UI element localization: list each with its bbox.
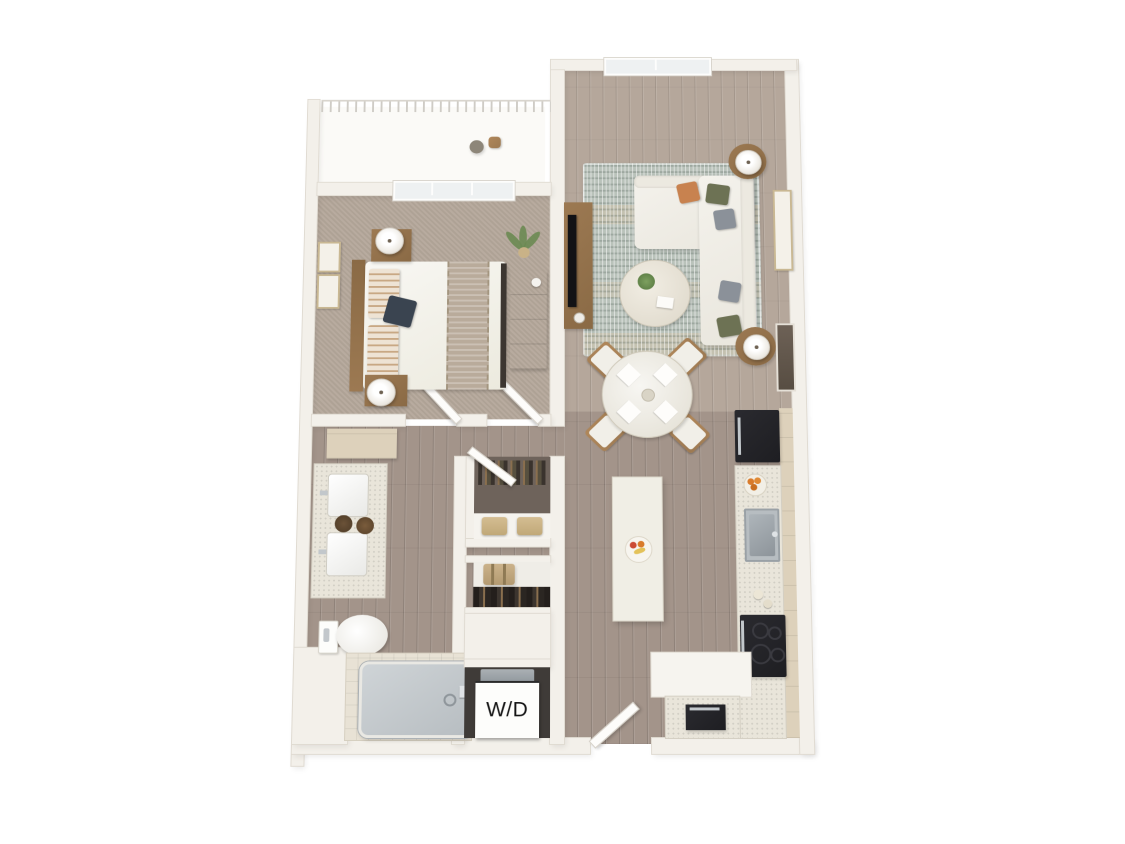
- vanity-sink: [326, 532, 368, 576]
- rust-accent-pillow: [676, 181, 701, 204]
- tub-drain: [443, 694, 456, 707]
- bathtub: [358, 661, 475, 738]
- vanity-tray: [356, 517, 374, 534]
- double-sink-vanity: [311, 464, 386, 597]
- window-mullion: [431, 183, 433, 195]
- walk-in-closet-wall-bottom: [466, 539, 550, 547]
- dresser-vase: [531, 278, 541, 287]
- gray-accent-pillow: [718, 280, 742, 303]
- garlic-bulb: [763, 599, 772, 608]
- storage-basket: [482, 517, 508, 535]
- coat-closet-interior: [473, 562, 550, 608]
- media-console: [564, 202, 593, 329]
- olive-accent-pillow: [705, 183, 730, 205]
- vanity-faucet: [320, 491, 328, 496]
- toilet-flush-button: [323, 628, 329, 642]
- closet-shelf: [474, 513, 551, 539]
- living-room-window: [604, 58, 711, 75]
- bathroom-linen-cabinet: [326, 429, 397, 459]
- balcony-railing: [321, 100, 551, 112]
- wall-block-closet: [465, 614, 550, 660]
- balcony-bistro-chair: [488, 137, 500, 148]
- potted-palm-plant: [509, 224, 538, 260]
- stainless-steel-sink: [744, 509, 780, 562]
- wall-closet-main-divider: [550, 457, 564, 744]
- fridge-handle: [738, 417, 742, 454]
- kitchen-knee-wall: [651, 653, 751, 697]
- bedroom-wall-art: [316, 274, 340, 309]
- gray-accent-pillow: [713, 208, 737, 230]
- lamp-finial: [746, 161, 750, 165]
- bedroom-south-wall-a: [312, 415, 405, 426]
- washer-dryer-unit: W/D: [475, 681, 539, 738]
- lamp-finial: [379, 391, 383, 395]
- balcony-floor: [317, 107, 545, 188]
- balcony-bistro-table: [470, 140, 484, 153]
- knit-throw-blanket: [446, 262, 489, 390]
- orange-fruit-bowl: [743, 474, 767, 497]
- toilet-bowl: [336, 615, 388, 656]
- lamp-finial: [388, 239, 392, 243]
- lamp-finial: [755, 345, 759, 349]
- outer-wall-step-bottom-left: [292, 648, 349, 744]
- striped-pillow: [367, 325, 399, 376]
- bedroom-window: [393, 181, 515, 201]
- outer-wall-bottom-right: [652, 738, 814, 754]
- refrigerator: [735, 410, 781, 462]
- vanity-sink: [327, 474, 369, 517]
- hanging-coats: [473, 587, 550, 608]
- apartment-floor-plan: W/D: [290, 60, 837, 806]
- navy-accent-pillow: [382, 295, 417, 328]
- laundry-closet-wall-top: [465, 659, 550, 667]
- fruit-plate: [625, 536, 653, 563]
- round-dining-table: [602, 351, 694, 438]
- round-coffee-table: [619, 260, 690, 327]
- plant-pot: [518, 247, 529, 258]
- console-speaker: [574, 312, 586, 323]
- laundry-closet-interior: W/D: [464, 667, 550, 738]
- vanity-tray: [335, 515, 353, 532]
- garlic-bulb: [753, 590, 763, 600]
- vanity-faucet: [318, 549, 326, 554]
- wall-mirror: [777, 325, 794, 389]
- table-lamp: [743, 334, 770, 360]
- coffee-table-plant: [638, 273, 655, 289]
- place-setting: [617, 400, 642, 424]
- sink-faucet: [772, 531, 778, 537]
- suitcase: [483, 564, 515, 585]
- flat-screen-tv: [568, 215, 577, 307]
- bedroom-dresser: [510, 271, 547, 370]
- window-mullion: [655, 60, 657, 70]
- floor-plan-canvas: W/D: [0, 0, 1125, 844]
- bed-frame-foot: [500, 263, 507, 387]
- wall-bedroom-living-divider: [550, 70, 564, 426]
- storage-basket: [517, 517, 543, 535]
- bedroom-wall-art: [317, 242, 341, 273]
- washer-dryer-label: W/D: [486, 699, 528, 723]
- place-setting: [653, 363, 678, 387]
- place-setting: [616, 363, 641, 387]
- window-mullion: [471, 183, 473, 195]
- table-centerpiece: [641, 389, 655, 402]
- kitchen-countertop: [735, 466, 785, 738]
- place-setting: [653, 400, 678, 424]
- queen-bed: [363, 262, 507, 390]
- bedroom-south-wall-b: [457, 415, 486, 426]
- floor-lamp: [735, 150, 762, 175]
- kitchen-island: [613, 477, 663, 620]
- living-wall-art: [773, 190, 794, 271]
- dishwasher: [686, 705, 726, 731]
- coffee-table-book: [656, 296, 674, 309]
